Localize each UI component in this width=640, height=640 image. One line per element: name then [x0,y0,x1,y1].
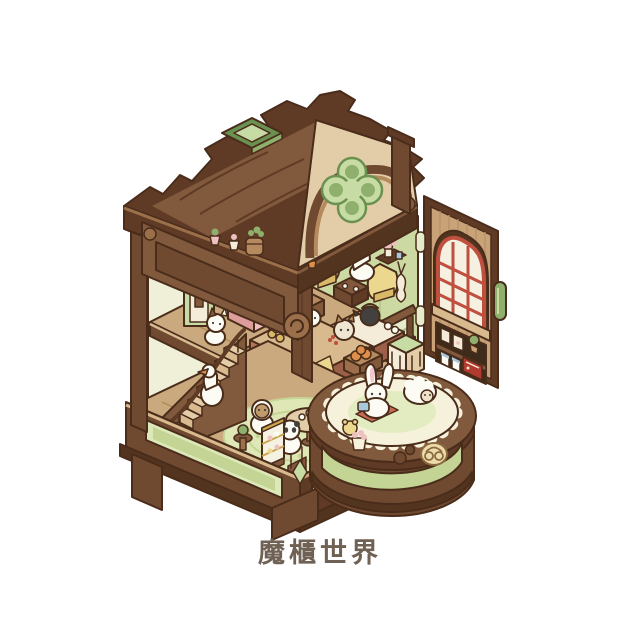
right-post [388,127,414,214]
canvas: 魔櫃世界 [0,0,640,640]
scroll-ornament [284,313,310,339]
title-caption: 魔櫃世界 [0,531,640,570]
balcony [308,364,476,516]
door-handle [494,282,506,320]
open-door [416,196,506,388]
black-kettle [361,307,380,326]
pretzel-emblem [421,443,447,465]
hinge [416,306,425,326]
hinge [416,232,425,252]
blue-toy [358,402,369,411]
